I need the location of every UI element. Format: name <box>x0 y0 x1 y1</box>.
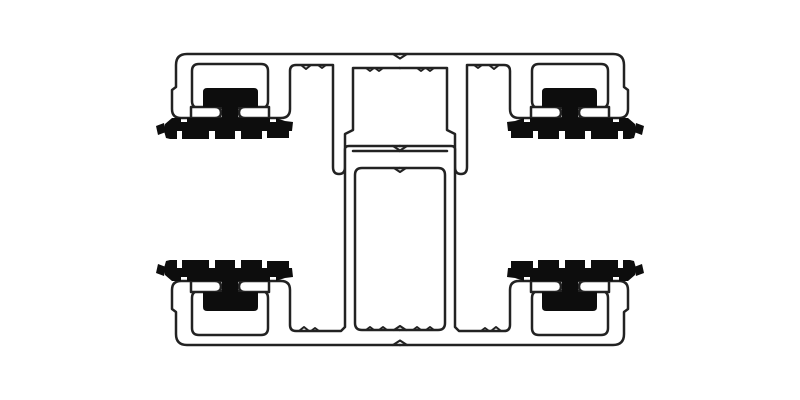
profile-cross-section-figure <box>0 0 800 400</box>
profile-right-half <box>400 54 644 345</box>
profile-left-half <box>156 54 400 345</box>
aluminum-profile-cross-section-drawing <box>0 0 800 400</box>
